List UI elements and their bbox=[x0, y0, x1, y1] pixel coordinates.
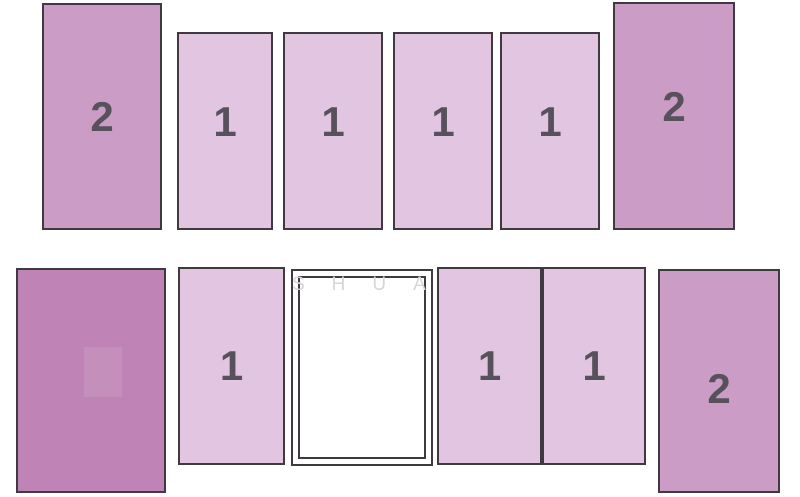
watermark-text: SHUA bbox=[292, 274, 453, 296]
berth-label: 1 bbox=[321, 101, 344, 143]
berth-label: 1 bbox=[220, 345, 243, 387]
berth-1-bottom-mid-a: 1 bbox=[437, 267, 542, 465]
berth-2-bottom-right: 2 bbox=[658, 269, 780, 493]
berth-label: 2 bbox=[90, 96, 113, 138]
white-panel-inner bbox=[298, 276, 426, 459]
berth-label: 1 bbox=[213, 101, 236, 143]
berth-1-bottom-left: 1 bbox=[178, 267, 285, 465]
berth-1-top-b: 1 bbox=[283, 32, 383, 230]
berth-label: 1 bbox=[431, 101, 454, 143]
berth-2-top-left: 2 bbox=[42, 3, 162, 230]
berth-2-top-right: 2 bbox=[613, 2, 735, 230]
berth-layout-diagram: 2 1 1 1 1 2 1 SHUA 1 1 2 bbox=[0, 0, 800, 497]
white-panel bbox=[291, 269, 433, 466]
berth-1-top-d: 1 bbox=[500, 32, 600, 230]
berth-label: 1 bbox=[582, 345, 605, 387]
berth-label: 2 bbox=[707, 368, 730, 410]
berth-1-top-c: 1 bbox=[393, 32, 493, 230]
berth-label: 1 bbox=[478, 345, 501, 387]
berth-label: 1 bbox=[538, 101, 561, 143]
berth-label: 2 bbox=[662, 86, 685, 128]
dark-block bbox=[16, 268, 166, 493]
berth-1-bottom-mid-b: 1 bbox=[542, 267, 646, 465]
faint-highlight bbox=[84, 347, 122, 397]
berth-1-top-a: 1 bbox=[177, 32, 273, 230]
